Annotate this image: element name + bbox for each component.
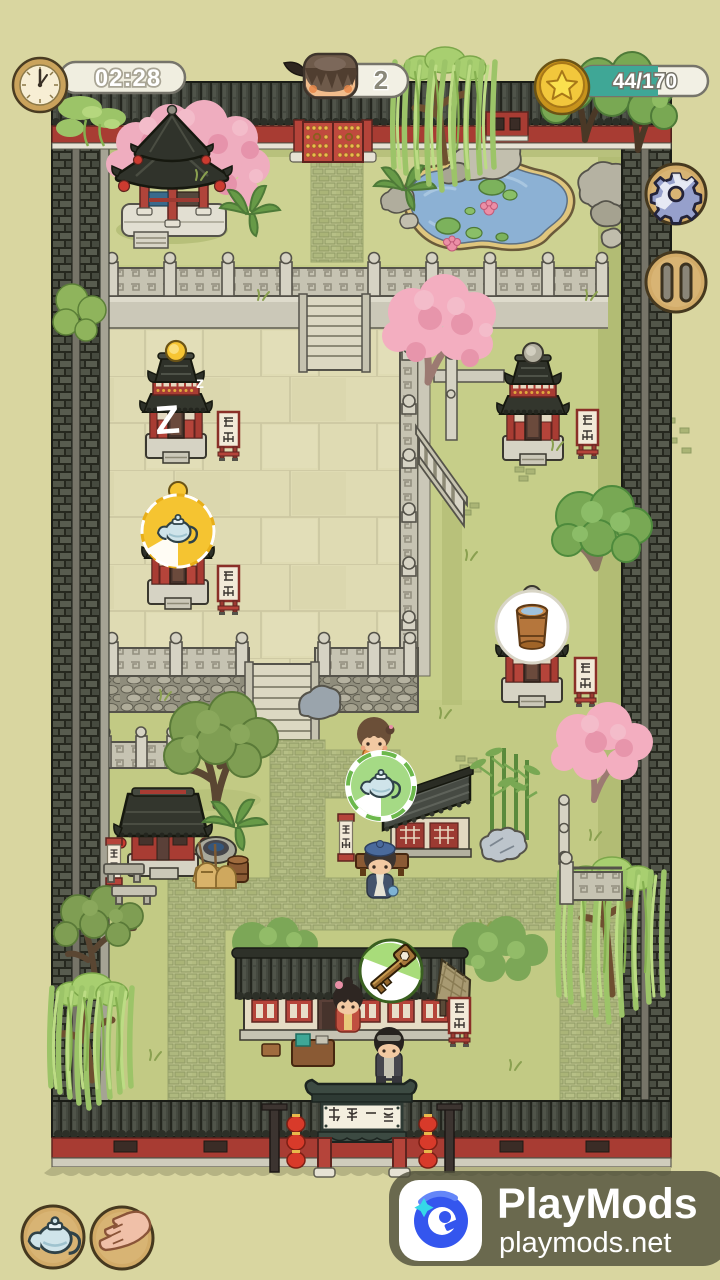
svg-text:02:28: 02:28: [95, 65, 161, 92]
svg-text:z: z: [196, 375, 204, 392]
svg-text:PlayMods: PlayMods: [497, 1180, 698, 1228]
svg-text:playmods.net: playmods.net: [499, 1227, 672, 1259]
svg-text:Z: Z: [154, 398, 181, 444]
svg-text:2: 2: [374, 65, 388, 95]
svg-text:44/170: 44/170: [613, 70, 677, 93]
